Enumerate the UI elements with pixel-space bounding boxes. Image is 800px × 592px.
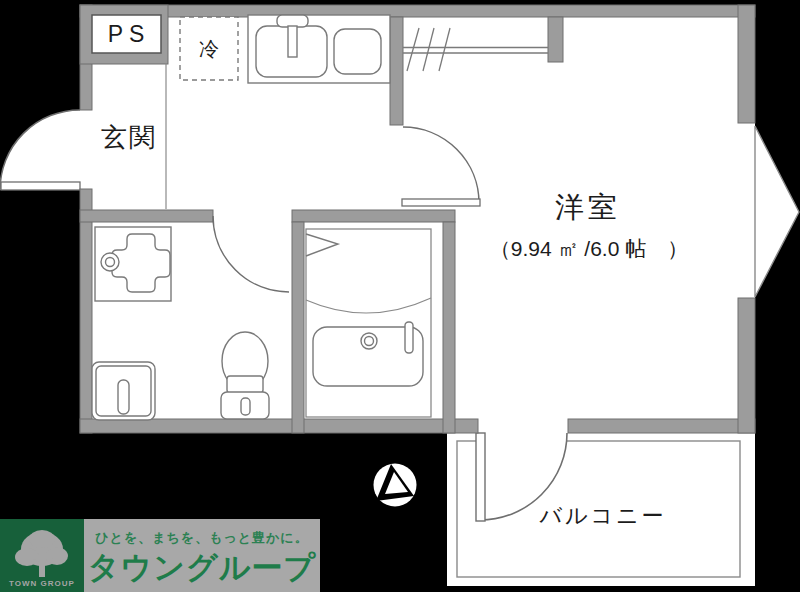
kitchen-burner	[334, 29, 381, 74]
washing-machine-pan	[92, 362, 155, 420]
entrance-label: 玄関	[101, 124, 157, 150]
western-room-label: 洋室	[555, 193, 621, 222]
floorplan-svg	[0, 0, 800, 592]
toilet	[221, 332, 269, 419]
room-door-leaf	[402, 199, 480, 206]
western-room-size-label: （9.94 ㎡ /6.0 帖 ）	[490, 238, 688, 259]
logo-tagline: ひとを、まちを、もっと豊かに。	[84, 529, 320, 547]
compass-north-icon	[374, 464, 417, 507]
kitchen-unit	[248, 15, 390, 83]
balcony-door-leaf	[476, 433, 485, 521]
floorplan-image: PS 冷 玄関 洋室 （9.94 ㎡ /6.0 帖 ） バルコニー TOWN G…	[0, 0, 800, 592]
logo-group-label: TOWN GROUP	[0, 579, 84, 588]
logo-text-band: ひとを、まちを、もっと豊かに。 タウングループ	[84, 519, 320, 592]
ps-label: PS	[108, 23, 151, 46]
window-outswing-triangle	[755, 126, 799, 297]
washbasin	[95, 227, 171, 301]
entrance-door	[0, 110, 80, 190]
logo-company-name: タウングループ	[84, 547, 320, 589]
logo-green-box: TOWN GROUP	[0, 519, 84, 592]
balcony-label: バルコニー	[539, 505, 666, 527]
kitchen-faucet	[277, 15, 308, 27]
kitchen-faucet-stem	[288, 26, 297, 57]
town-group-logo: TOWN GROUP ひとを、まちを、もっと豊かに。 タウングループ	[0, 519, 320, 592]
bathtub-faucet	[405, 322, 413, 353]
fridge-label: 冷	[199, 39, 219, 59]
entrance-door-leaf	[1, 182, 80, 190]
